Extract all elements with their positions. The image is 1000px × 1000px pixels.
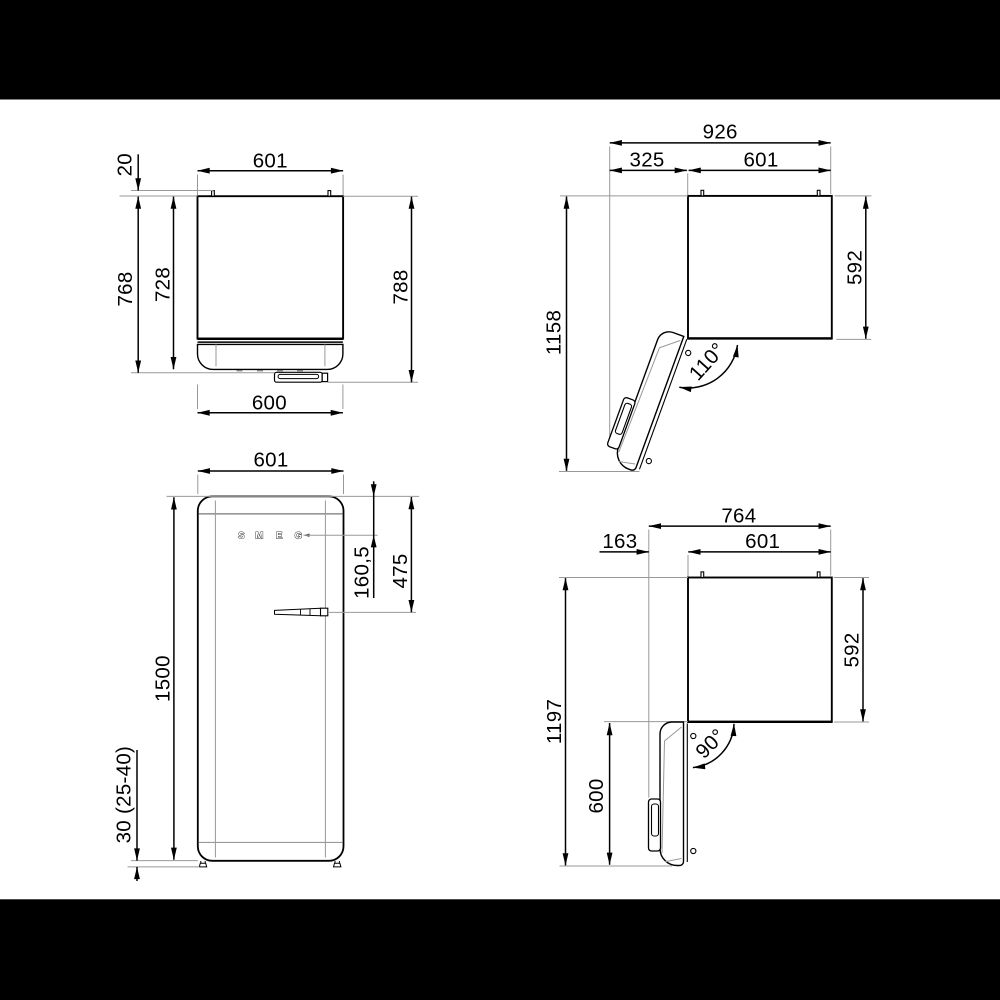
svg-text:30 (25-40): 30 (25-40) — [113, 746, 136, 844]
svg-text:601: 601 — [745, 530, 780, 553]
svg-text:160,5: 160,5 — [351, 546, 374, 599]
svg-text:600: 600 — [252, 391, 287, 414]
svg-text:764: 764 — [721, 504, 756, 527]
svg-text:788: 788 — [390, 269, 413, 304]
svg-text:601: 601 — [253, 149, 288, 172]
svg-text:1197: 1197 — [543, 699, 566, 744]
svg-text:163: 163 — [602, 530, 637, 553]
svg-text:475: 475 — [389, 553, 412, 588]
svg-text:325: 325 — [630, 149, 665, 172]
svg-text:20: 20 — [114, 153, 137, 176]
svg-text:E: E — [276, 531, 282, 542]
svg-text:1158: 1158 — [543, 310, 566, 355]
svg-text:601: 601 — [743, 149, 778, 172]
svg-text:592: 592 — [841, 632, 864, 667]
svg-text:768: 768 — [114, 271, 137, 306]
svg-text:M: M — [255, 531, 263, 542]
svg-text:601: 601 — [253, 448, 288, 471]
svg-text:926: 926 — [703, 120, 738, 143]
svg-text:600: 600 — [585, 778, 608, 813]
svg-text:S: S — [238, 531, 244, 542]
svg-text:592: 592 — [843, 250, 866, 285]
svg-text:728: 728 — [151, 267, 174, 302]
svg-text:G: G — [295, 531, 302, 542]
svg-text:1500: 1500 — [151, 655, 174, 702]
